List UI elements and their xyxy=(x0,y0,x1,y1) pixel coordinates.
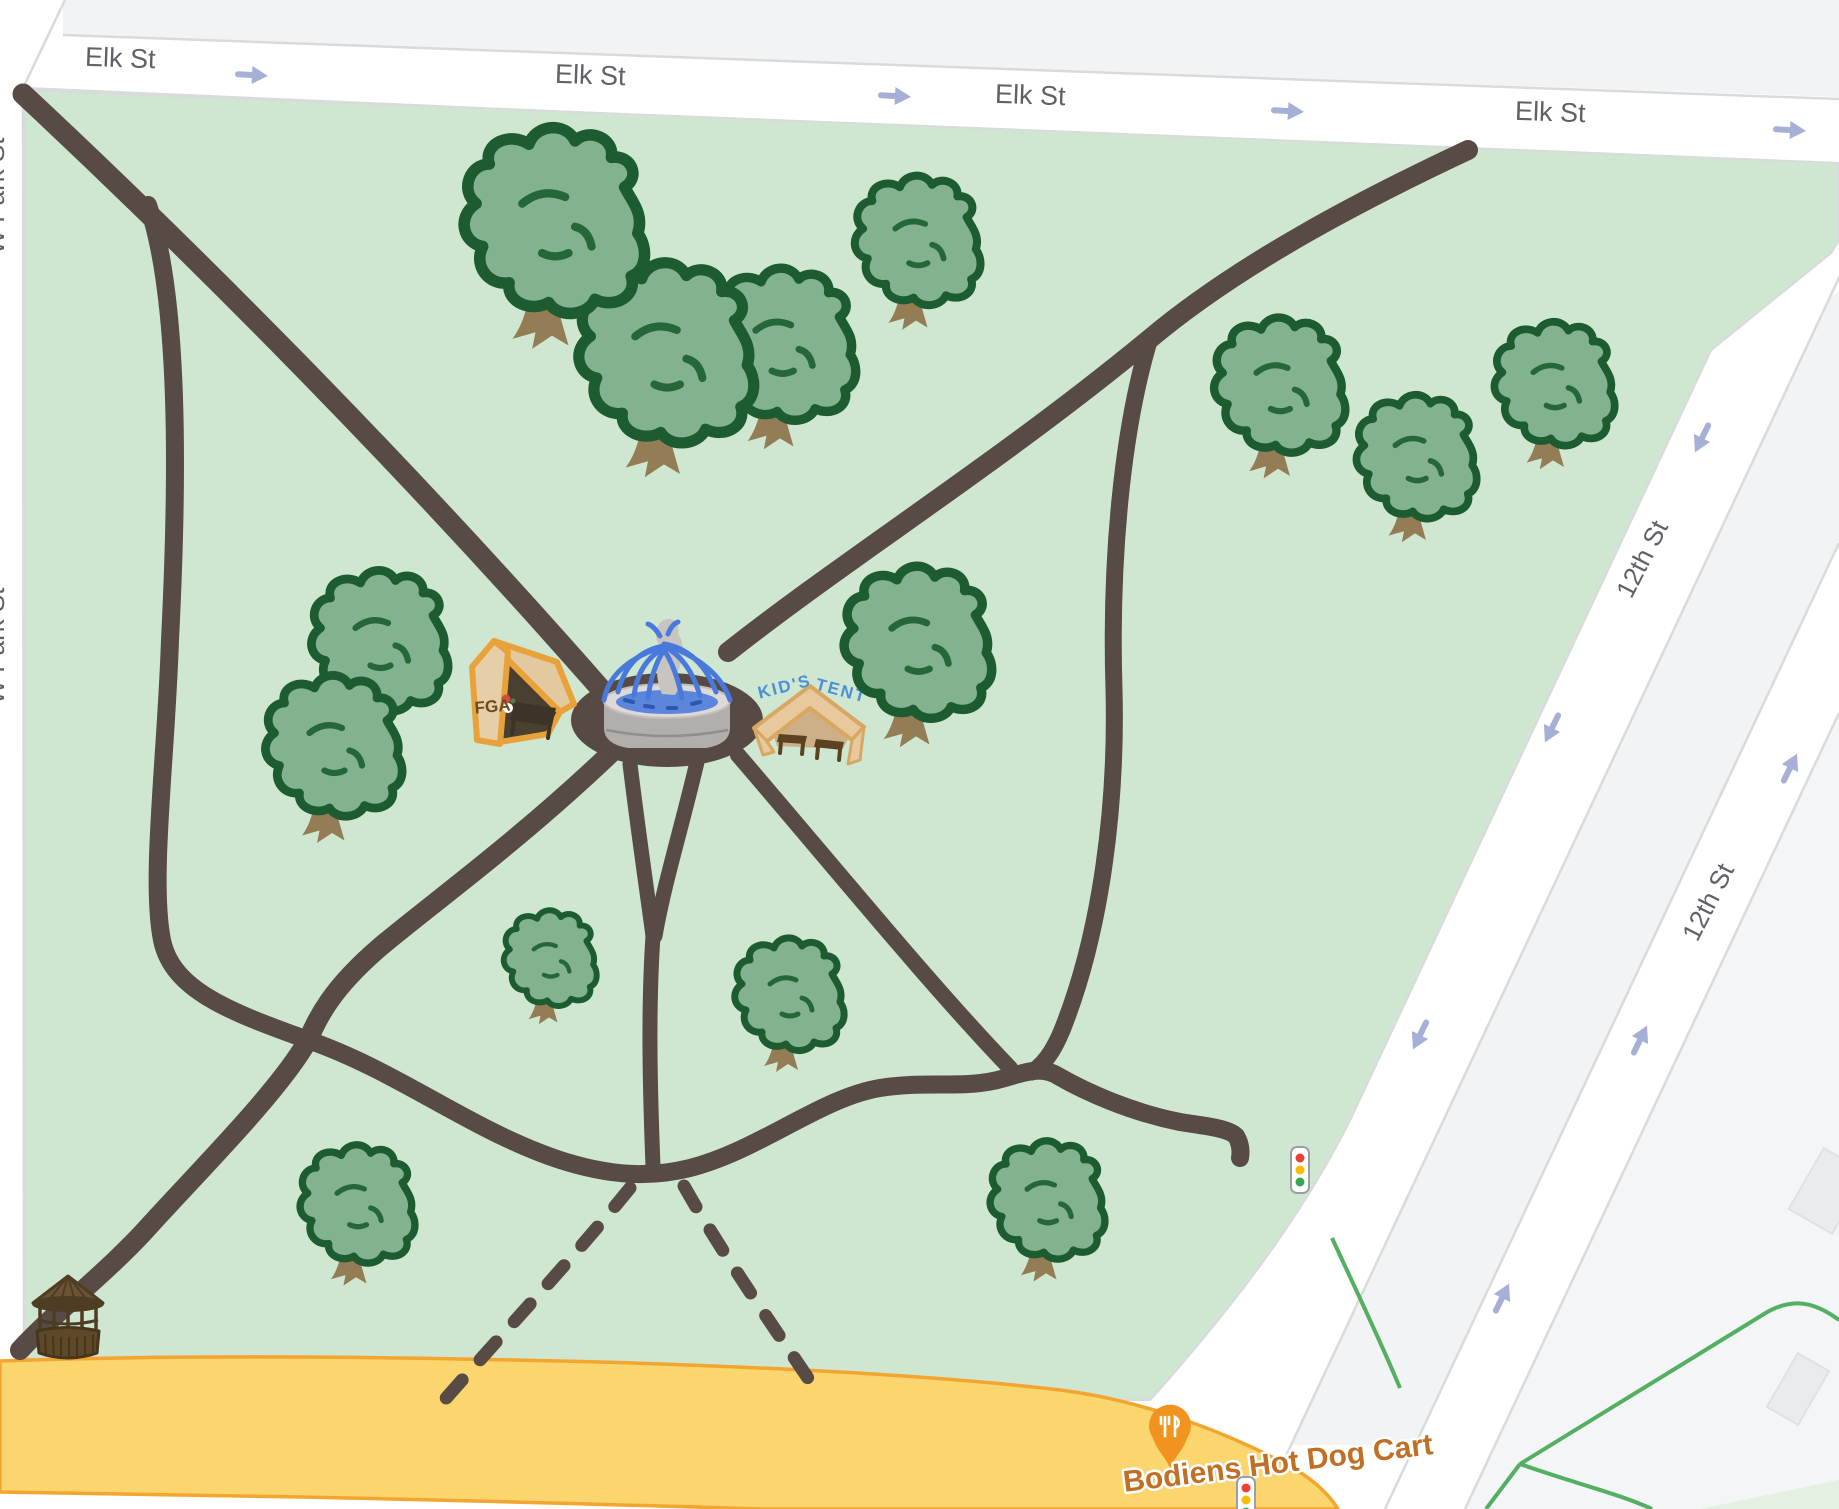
street-label-wpark: W Park St xyxy=(0,137,10,255)
street-label-wpark: W Park St xyxy=(0,587,10,705)
path-fork-stem xyxy=(650,936,653,1166)
traffic-light-icon xyxy=(1291,1147,1309,1193)
map-canvas[interactable]: FGA KID'S TENT Elk StElk StElk xyxy=(0,0,1839,1509)
street-label-elk: Elk St xyxy=(85,42,157,74)
map-viewport[interactable]: FGA KID'S TENT Elk StElk StElk xyxy=(0,0,1839,1509)
street-label-elk: Elk St xyxy=(555,59,627,91)
traffic-light-icon xyxy=(1237,1477,1255,1509)
street-label-elk: Elk St xyxy=(1515,96,1587,128)
street-label-elk: Elk St xyxy=(995,79,1067,111)
fga-tent-label: FGA xyxy=(474,695,511,717)
